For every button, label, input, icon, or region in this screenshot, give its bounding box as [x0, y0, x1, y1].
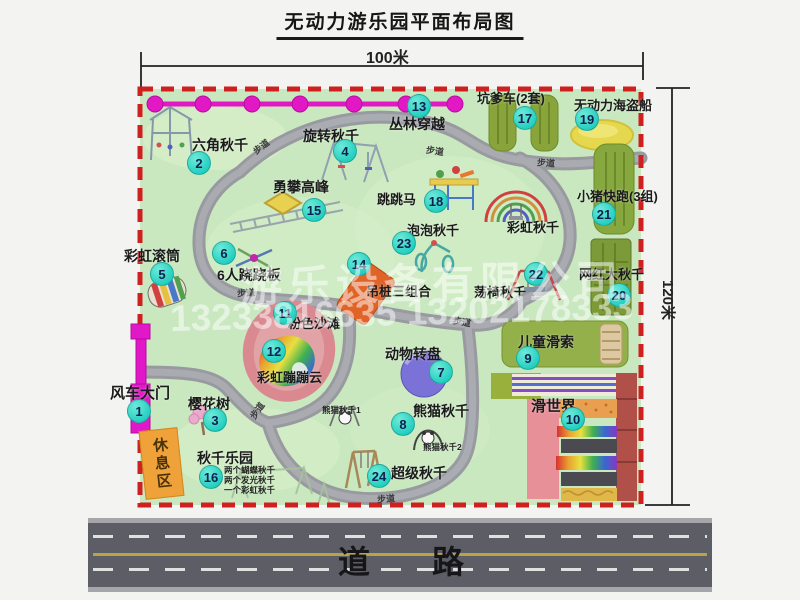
panda-swing-2-label: 熊猫秋千2	[423, 441, 462, 453]
road-label: 道路	[338, 537, 526, 583]
attraction-badge-12: 12	[262, 339, 286, 363]
attraction-badge-11: 11	[273, 301, 297, 325]
attraction-badge-18: 18	[424, 189, 448, 213]
walkway-label-4: 步道	[237, 285, 256, 299]
attraction-badge-22: 22	[524, 262, 548, 286]
playground-layout-map: 无动力游乐园平面布局图 100米 120米 1 2 3 4 5 6 7 8 9 …	[0, 0, 800, 600]
panda-swing-1-label: 熊猫秋千1	[322, 404, 361, 416]
attraction-label-17: 坑爹车(2套)	[477, 88, 545, 107]
attraction-label-18: 跳跳马	[377, 189, 416, 208]
attraction-badge-10: 10	[561, 407, 585, 431]
attraction-badge-6: 6	[212, 241, 236, 265]
attraction-label-15: 勇攀高峰	[273, 177, 329, 197]
rest-area-label: 休息区	[148, 436, 175, 492]
attraction-label-14: 吊桩三组合	[366, 281, 431, 300]
attraction-badge-16: 16	[199, 465, 223, 489]
attraction-label-21: 小猪快跑(3组)	[577, 186, 658, 205]
attraction-badge-1: 1	[127, 399, 151, 423]
page-title: 无动力游乐园平面布局图	[276, 7, 523, 40]
attraction-badge-24: 24	[367, 464, 391, 488]
attraction-label-6: 6人跷跷板	[217, 265, 281, 285]
road-edge-bottom	[88, 587, 712, 592]
attraction-label-22: 荡椅秋千	[474, 282, 526, 301]
attraction-label-12: 彩虹蹦蹦云	[257, 367, 322, 386]
attraction-label-23: 泡泡秋千	[407, 220, 459, 239]
rest-area-box: 休息区	[139, 427, 185, 500]
attraction-badge-15: 15	[302, 198, 326, 222]
attraction-label-5: 彩虹滚筒	[124, 246, 180, 266]
attraction-badge-23: 23	[392, 231, 416, 255]
attraction-badge-3: 3	[203, 408, 227, 432]
attraction-badge-14: 14	[347, 252, 371, 276]
attraction-badge-8: 8	[391, 412, 415, 436]
walkway-label-3: 步道	[537, 155, 556, 169]
swing-note-3: 一个彩虹秋千	[224, 485, 275, 495]
swing-note-2: 两个发光秋千	[224, 475, 275, 485]
height-dimension-label: 120米	[658, 280, 679, 320]
attraction-badge-5: 5	[150, 262, 174, 286]
swing-park-notes: 两个蝴蝶秋千 两个发光秋千 一个彩虹秋千	[224, 465, 275, 495]
attraction-label-20: 网红大秋千	[579, 264, 644, 283]
attraction-badge-21: 21	[592, 202, 616, 226]
swing-note-1: 两个蝴蝶秋千	[224, 465, 275, 475]
attraction-label-7: 动物转盘	[385, 344, 441, 364]
attraction-label-8: 熊猫秋千	[413, 401, 469, 421]
walkway-label-7: 步道	[377, 491, 396, 505]
attraction-badge-2: 2	[187, 151, 211, 175]
width-dimension-label: 100米	[366, 44, 409, 68]
attraction-badge-7: 7	[429, 360, 453, 384]
rainbow-swing-label: 彩虹秋千	[507, 217, 559, 236]
walkway-label-2: 步道	[425, 143, 445, 158]
attraction-badge-19: 19	[575, 107, 599, 131]
attraction-badge-4: 4	[333, 139, 357, 163]
attraction-label-24: 超级秋千	[391, 463, 447, 483]
map-graphics	[0, 0, 800, 600]
attraction-badge-17: 17	[513, 106, 537, 130]
attraction-badge-13: 13	[407, 94, 431, 118]
attraction-badge-20: 20	[607, 283, 631, 307]
attraction-badge-9: 9	[516, 346, 540, 370]
